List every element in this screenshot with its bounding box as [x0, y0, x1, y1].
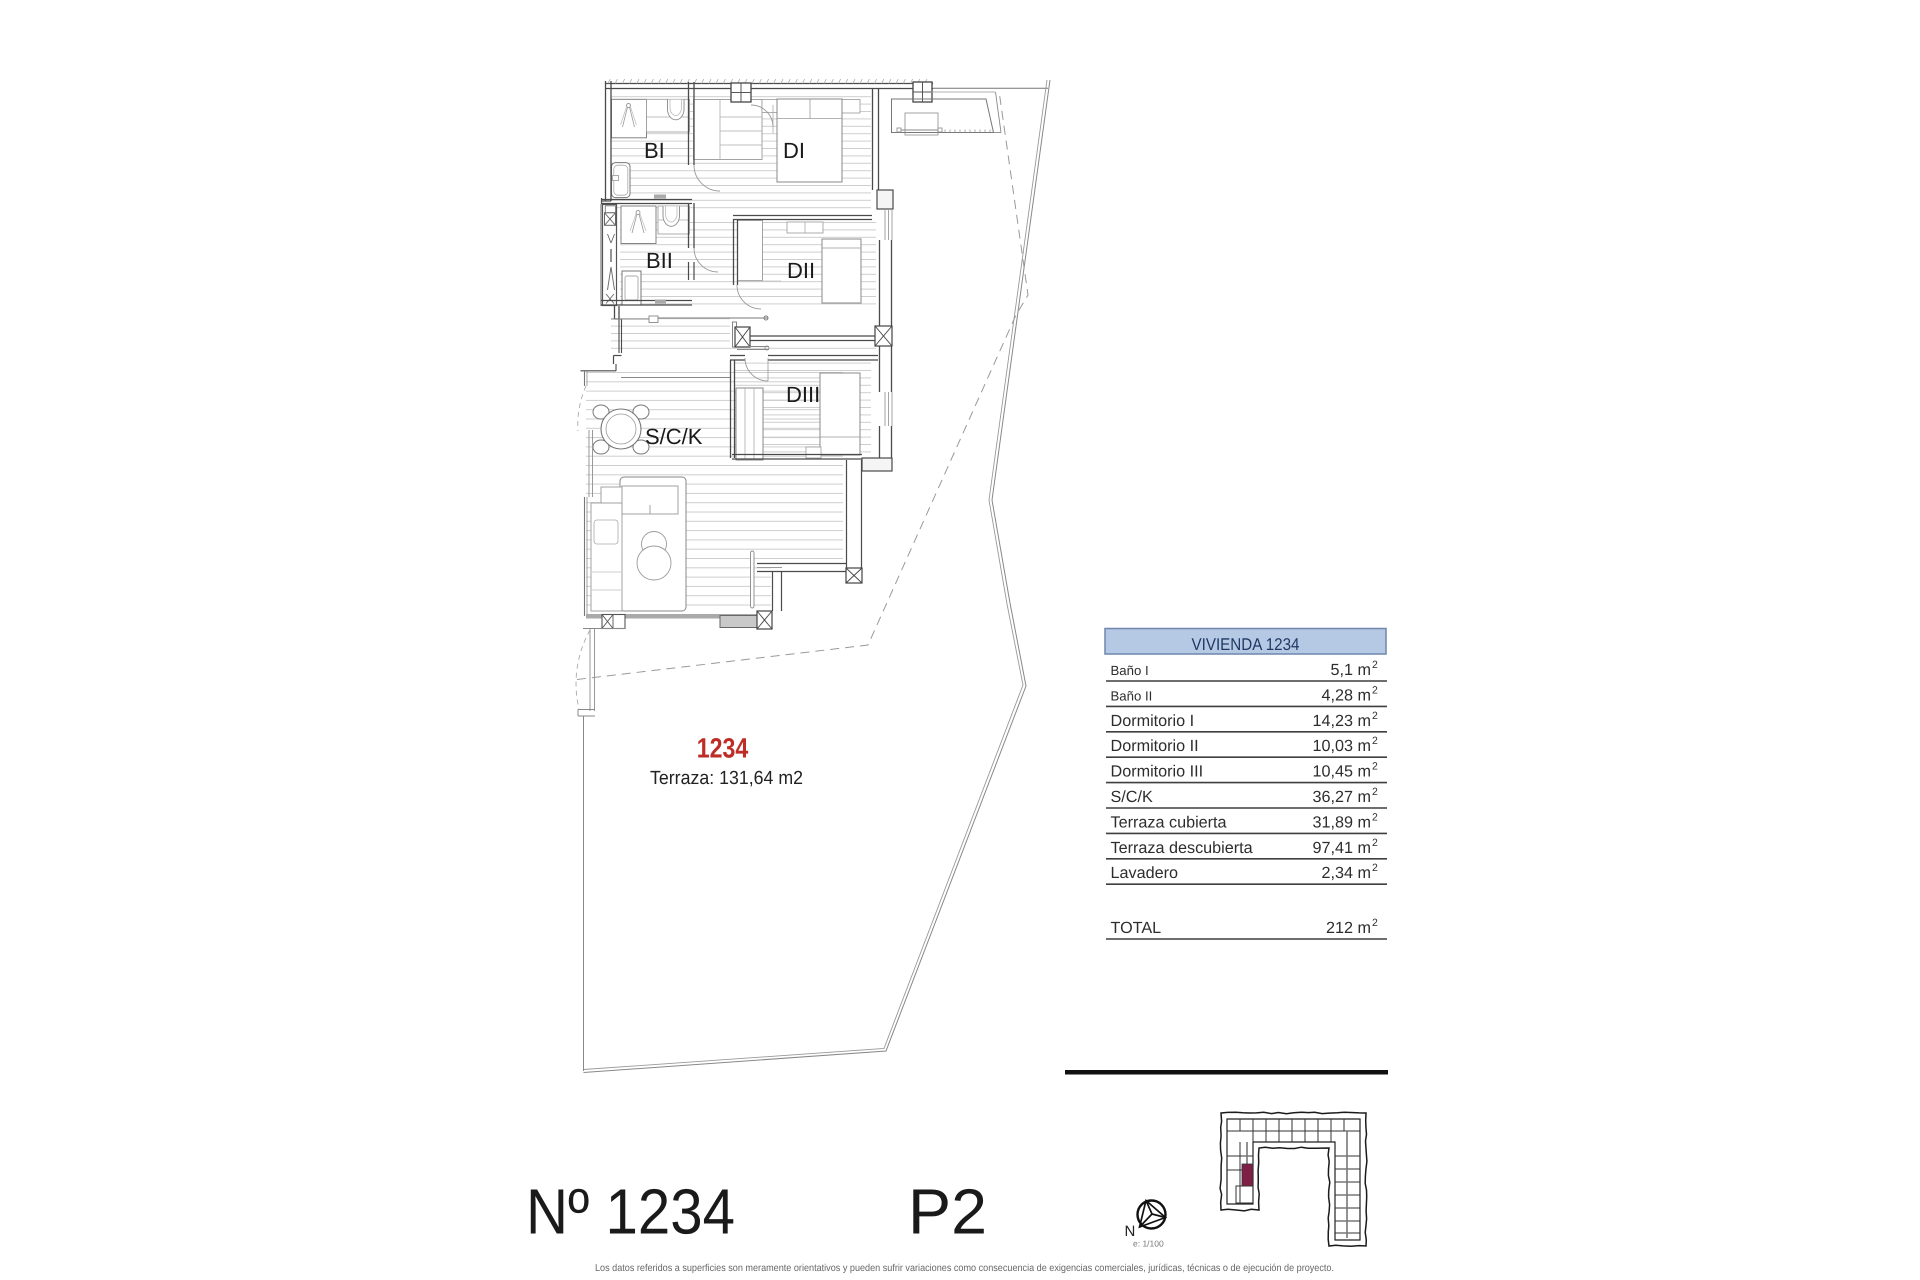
svg-text:10,03: 10,03 — [1312, 737, 1353, 755]
svg-text:14,23: 14,23 — [1312, 712, 1353, 730]
svg-text:Lavadero: Lavadero — [1111, 864, 1179, 882]
svg-text:m: m — [1358, 788, 1371, 806]
svg-text:2: 2 — [1372, 710, 1378, 722]
svg-text:Los datos referidos a superfic: Los datos referidos a superficies son me… — [595, 1263, 1334, 1274]
svg-text:31,89: 31,89 — [1312, 813, 1353, 831]
svg-text:2: 2 — [1372, 735, 1378, 747]
svg-text:2: 2 — [1372, 917, 1378, 929]
svg-text:2,34: 2,34 — [1321, 864, 1353, 882]
svg-text:Terraza: 131,64 m2: Terraza: 131,64 m2 — [650, 768, 803, 789]
svg-text:97,41: 97,41 — [1312, 839, 1353, 857]
svg-text:5,1: 5,1 — [1330, 661, 1353, 679]
svg-text:DIII: DIII — [786, 382, 820, 407]
svg-text:m: m — [1358, 737, 1371, 755]
svg-text:m: m — [1358, 813, 1371, 831]
svg-text:Dormitorio I: Dormitorio I — [1111, 712, 1195, 730]
svg-text:e: 1/100: e: 1/100 — [1133, 1239, 1164, 1249]
svg-text:DII: DII — [787, 258, 815, 283]
svg-text:2: 2 — [1372, 684, 1378, 696]
svg-text:N: N — [1125, 1223, 1136, 1240]
svg-text:36,27: 36,27 — [1312, 788, 1353, 806]
svg-text:2: 2 — [1372, 659, 1378, 671]
svg-text:m: m — [1358, 763, 1371, 781]
svg-text:Terraza descubierta: Terraza descubierta — [1111, 839, 1253, 857]
svg-text:2: 2 — [1372, 811, 1378, 823]
svg-text:m: m — [1358, 864, 1371, 882]
svg-text:1234: 1234 — [697, 733, 749, 764]
svg-text:m: m — [1358, 686, 1371, 704]
svg-text:10,45: 10,45 — [1312, 763, 1353, 781]
svg-text:Dormitorio III: Dormitorio III — [1111, 763, 1204, 781]
svg-text:m: m — [1358, 661, 1371, 679]
svg-text:Baño I: Baño I — [1111, 663, 1149, 678]
svg-text:m: m — [1358, 839, 1371, 857]
svg-text:Dormitorio II: Dormitorio II — [1111, 737, 1199, 755]
svg-text:Nº 1234: Nº 1234 — [526, 1176, 735, 1248]
svg-text:TOTAL: TOTAL — [1111, 919, 1162, 937]
svg-text:2: 2 — [1372, 761, 1378, 773]
svg-text:2: 2 — [1372, 862, 1378, 874]
svg-text:m: m — [1358, 919, 1371, 937]
svg-text:2: 2 — [1372, 837, 1378, 849]
svg-text:4,28: 4,28 — [1321, 686, 1353, 704]
svg-text:DI: DI — [783, 138, 805, 163]
svg-text:BI: BI — [644, 138, 665, 163]
svg-text:Baño II: Baño II — [1111, 688, 1153, 703]
svg-text:Terraza cubierta: Terraza cubierta — [1111, 813, 1227, 831]
svg-text:P2: P2 — [908, 1176, 987, 1248]
svg-text:212: 212 — [1326, 919, 1353, 937]
svg-text:VIVIENDA 1234: VIVIENDA 1234 — [1192, 635, 1300, 654]
svg-text:S/C/K: S/C/K — [1111, 788, 1153, 806]
svg-text:BII: BII — [646, 248, 673, 273]
svg-text:S/C/K: S/C/K — [645, 424, 703, 449]
svg-text:m: m — [1358, 712, 1371, 730]
svg-text:2: 2 — [1372, 786, 1378, 798]
